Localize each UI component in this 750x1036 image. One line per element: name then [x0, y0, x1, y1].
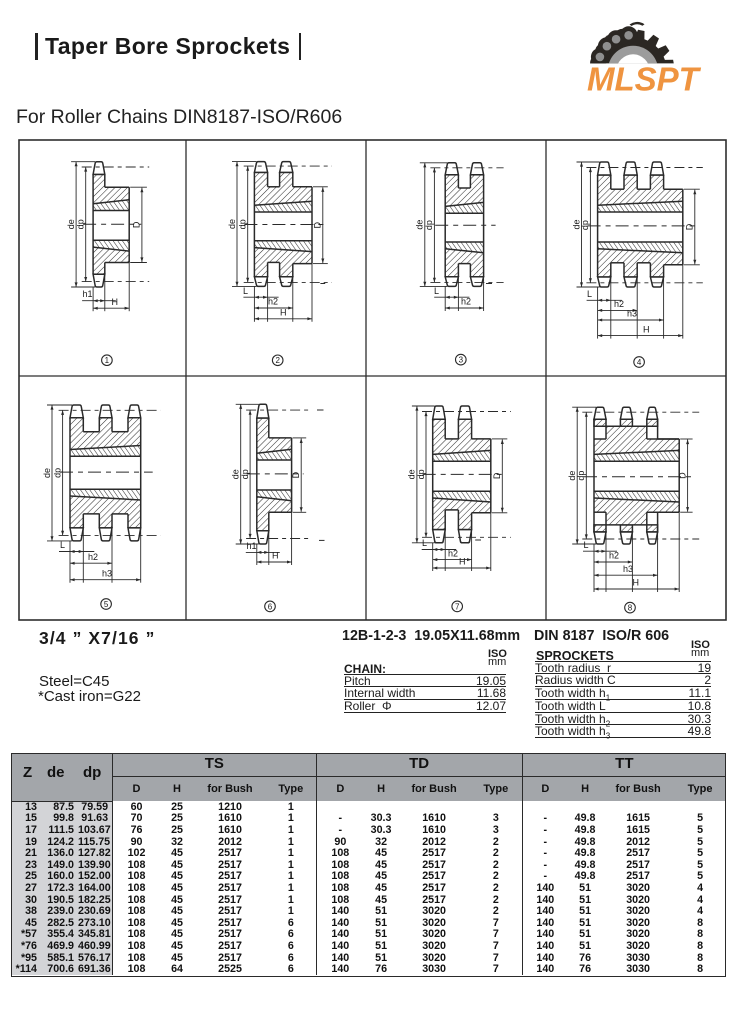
svg-text:D: D: [685, 223, 695, 230]
svg-text:L: L: [243, 286, 248, 296]
svg-text:D: D: [313, 221, 323, 228]
svg-text:dp: dp: [416, 469, 426, 479]
svg-text:1: 1: [105, 356, 110, 365]
svg-text:H: H: [643, 324, 650, 334]
svg-text:de: de: [415, 220, 425, 230]
svg-text:L: L: [434, 286, 439, 296]
svg-text:6: 6: [268, 602, 273, 611]
svg-text:3: 3: [459, 356, 464, 365]
svg-text:h1: h1: [247, 541, 257, 551]
svg-text:H: H: [112, 297, 119, 307]
svg-text:dp: dp: [240, 469, 250, 479]
svg-text:D: D: [677, 472, 687, 479]
svg-text:H: H: [459, 557, 466, 567]
svg-text:H: H: [280, 307, 287, 317]
svg-text:H: H: [633, 578, 640, 588]
svg-text:h2: h2: [268, 297, 278, 307]
svg-text:dp: dp: [238, 219, 248, 229]
svg-text:4: 4: [637, 358, 642, 367]
svg-text:D: D: [492, 472, 502, 479]
svg-text:L: L: [60, 540, 65, 550]
svg-text:MLSPT: MLSPT: [587, 61, 702, 98]
svg-text:h2: h2: [448, 548, 458, 558]
svg-text:dp: dp: [76, 219, 86, 229]
svg-text:dp: dp: [424, 220, 434, 230]
svg-text:L: L: [587, 289, 592, 299]
svg-text:h3: h3: [623, 564, 633, 574]
svg-text:h2: h2: [614, 299, 624, 309]
svg-text:dp: dp: [580, 220, 590, 230]
svg-text:h2: h2: [461, 297, 471, 307]
svg-text:de: de: [42, 468, 52, 478]
svg-text:L: L: [422, 538, 427, 548]
svg-text:5: 5: [104, 600, 109, 609]
svg-text:D: D: [291, 471, 301, 478]
svg-text:h2: h2: [609, 551, 619, 561]
svg-text:h3: h3: [627, 309, 637, 319]
svg-text:2: 2: [275, 356, 280, 365]
svg-text:D: D: [132, 221, 142, 228]
svg-text:de: de: [66, 219, 76, 229]
svg-text:h1: h1: [83, 289, 93, 299]
svg-text:L: L: [584, 540, 589, 550]
svg-text:7: 7: [455, 602, 460, 611]
svg-text:8: 8: [628, 604, 633, 613]
svg-text:h2: h2: [88, 552, 98, 562]
svg-text:H: H: [272, 551, 279, 561]
svg-text:h3: h3: [102, 568, 112, 578]
svg-text:dp: dp: [576, 471, 586, 481]
svg-text:de: de: [227, 219, 237, 229]
svg-text:dp: dp: [52, 468, 62, 478]
